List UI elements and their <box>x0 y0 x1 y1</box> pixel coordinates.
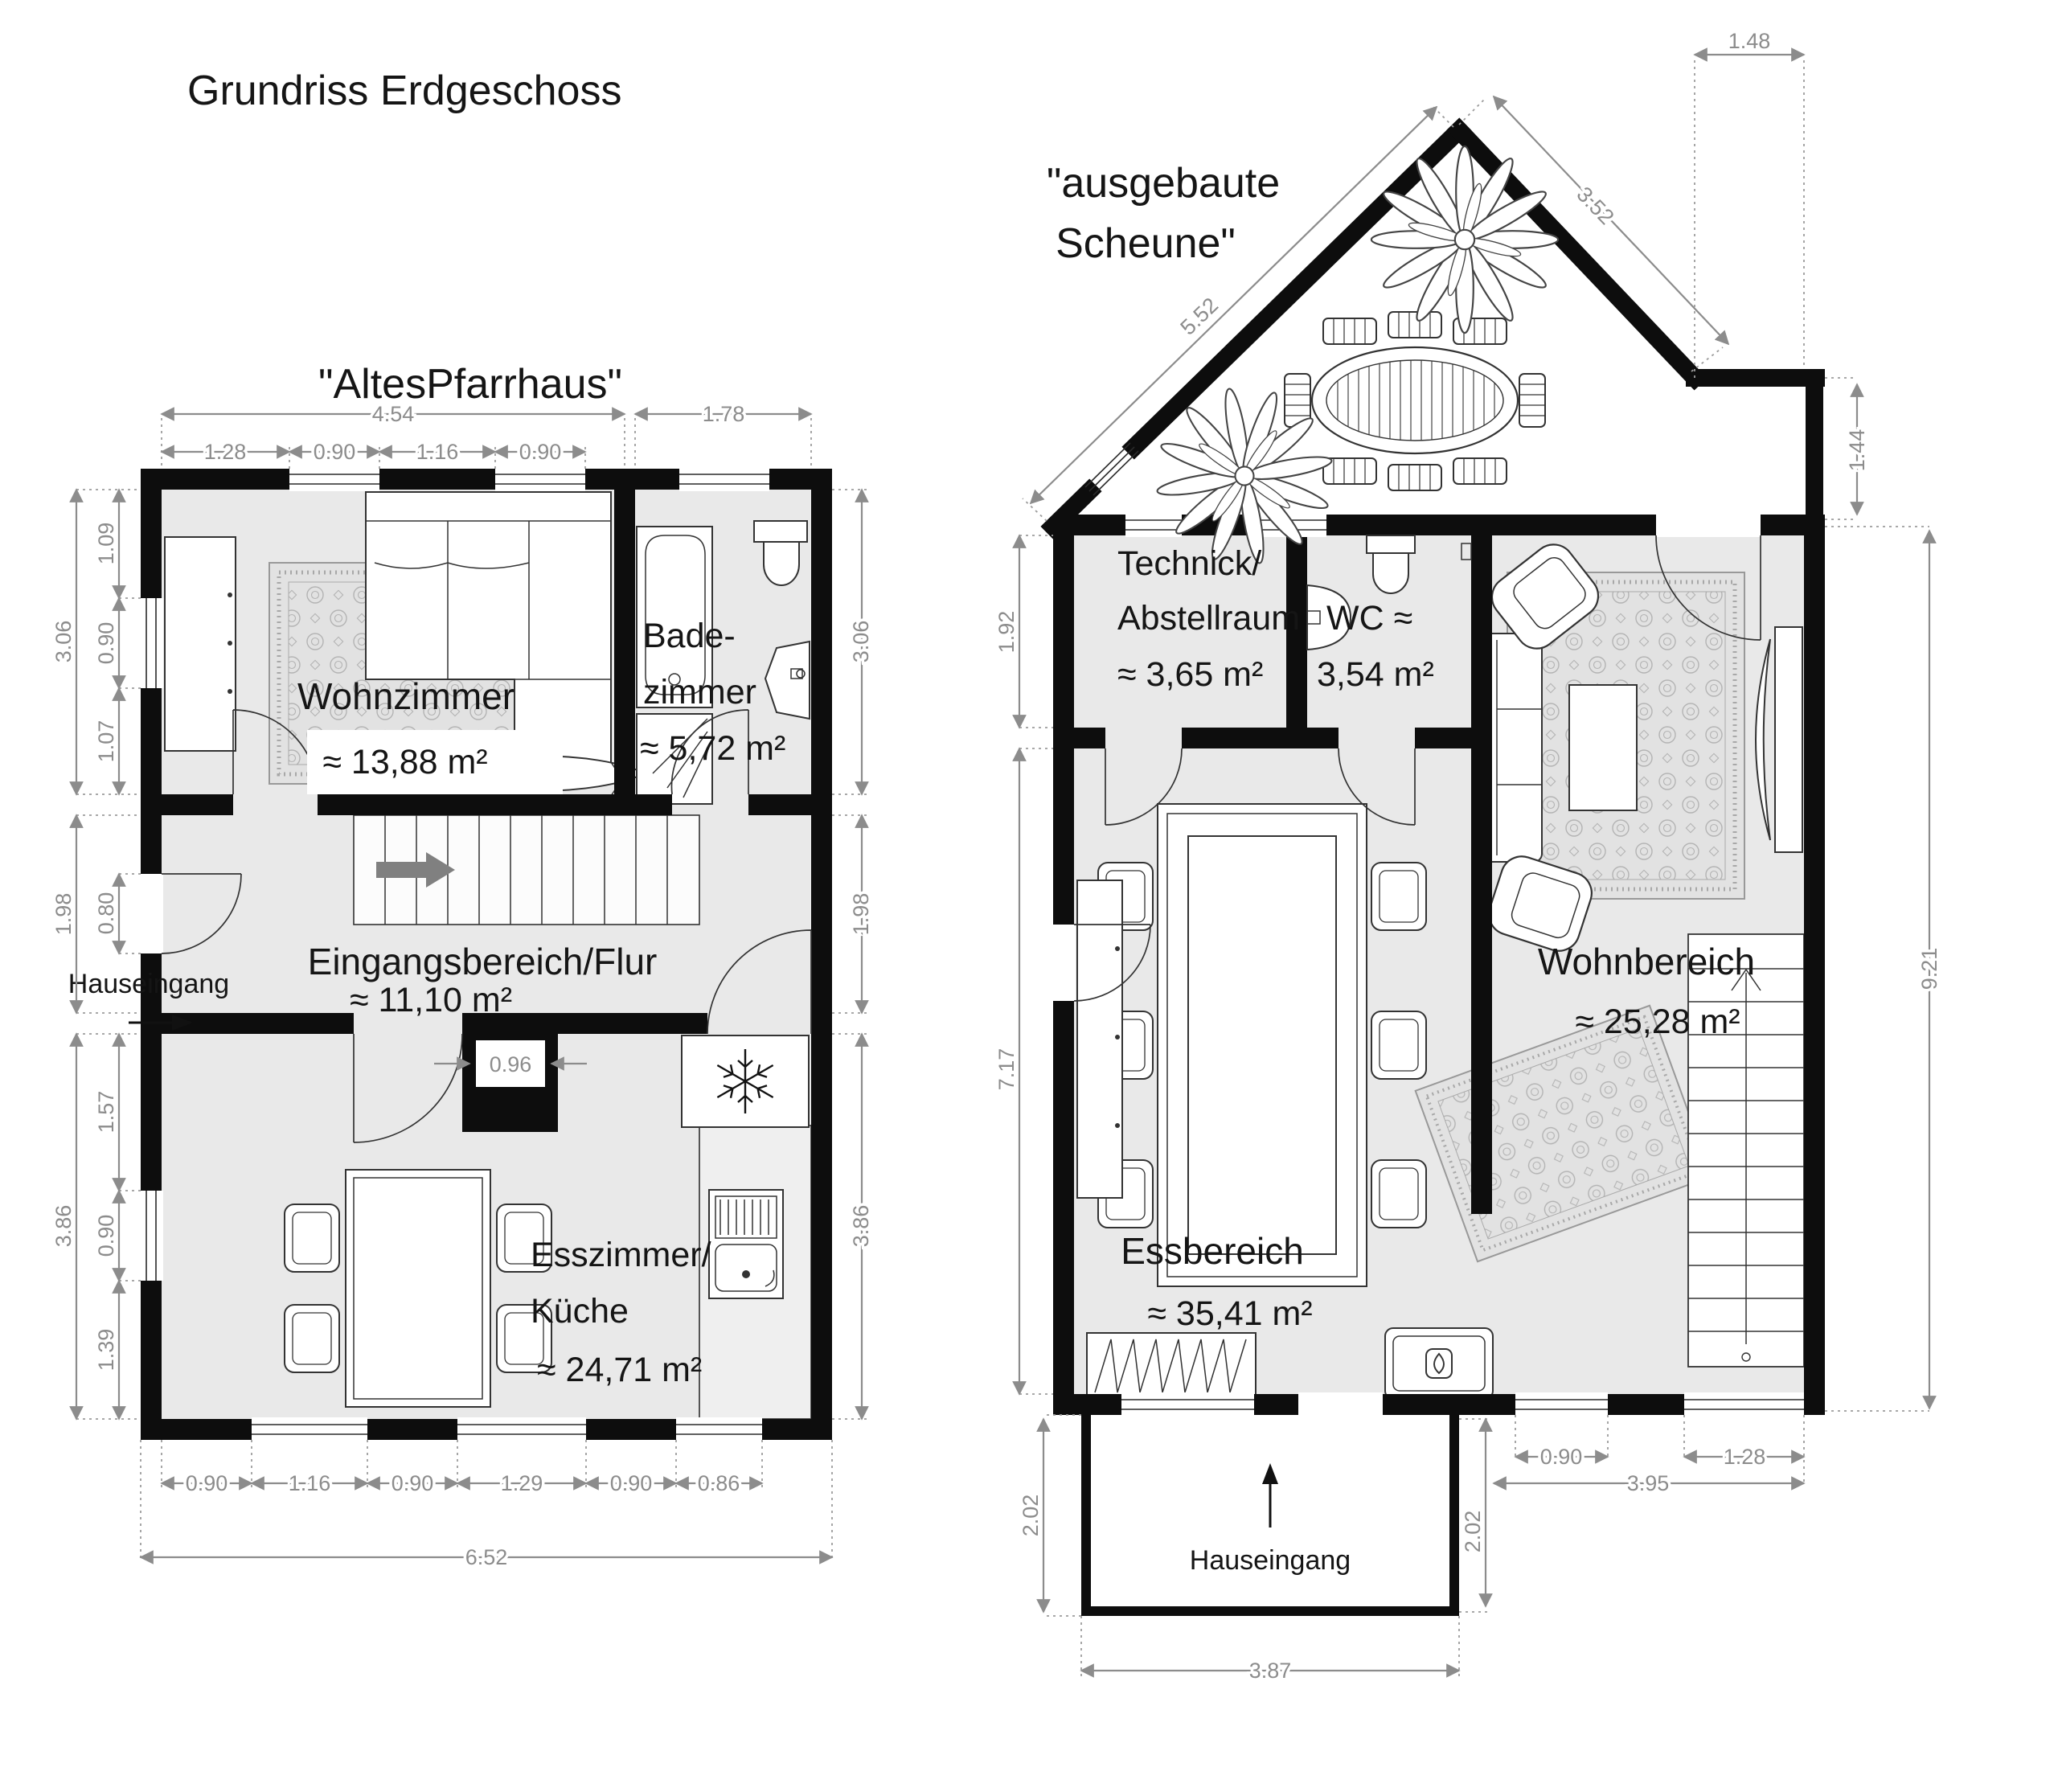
svg-text:0.80: 0.80 <box>94 892 118 935</box>
page-title: Grundriss Erdgeschoss <box>187 68 621 114</box>
essbereich-door-opening <box>1052 925 1076 1001</box>
wall-technik-wc <box>1286 535 1307 748</box>
svg-text:zimmer: zimmer <box>643 673 756 711</box>
svg-text:1.16: 1.16 <box>416 440 459 464</box>
svg-text:0.90: 0.90 <box>1540 1445 1583 1469</box>
wall-flur-ess <box>558 1013 707 1034</box>
svg-text:Essbereich: Essbereich <box>1121 1230 1304 1272</box>
dining-chair <box>285 1204 339 1272</box>
svg-text:1.39: 1.39 <box>94 1329 118 1372</box>
terrace-table <box>1312 347 1518 453</box>
sideboard <box>165 537 236 751</box>
radiator <box>1087 1333 1256 1397</box>
svg-text:≈ 35,41 m²: ≈ 35,41 m² <box>1147 1294 1312 1333</box>
svg-text:7.17: 7.17 <box>994 1048 1019 1091</box>
terrace-chair <box>1388 312 1441 338</box>
svg-text:1.09: 1.09 <box>94 523 118 565</box>
svg-text:3.06: 3.06 <box>51 621 76 663</box>
svg-text:1.78: 1.78 <box>703 402 745 426</box>
entrance-door-opening <box>139 874 163 953</box>
svg-text:WC ≈: WC ≈ <box>1326 599 1412 638</box>
svg-text:0.90: 0.90 <box>94 1215 118 1257</box>
svg-text:1.48: 1.48 <box>1728 29 1771 53</box>
terrace-chair <box>1388 465 1441 490</box>
svg-text:Eingangsbereich/Flur: Eingangsbereich/Flur <box>308 941 658 982</box>
wall-technik-ess <box>1182 728 1339 748</box>
svg-text:0.86: 0.86 <box>698 1471 740 1495</box>
terrace-chair <box>1323 318 1376 344</box>
svg-text:≈ 13,88 m²: ≈ 13,88 m² <box>322 743 487 781</box>
dining-chair <box>1371 1011 1426 1079</box>
svg-text:5.52: 5.52 <box>1175 293 1223 339</box>
left-plan-name: "AltesPfarrhaus" <box>318 361 622 408</box>
dining-table <box>346 1170 490 1407</box>
svg-text:Bade-: Bade- <box>643 617 736 655</box>
svg-text:2.02: 2.02 <box>1019 1495 1043 1537</box>
svg-text:6.52: 6.52 <box>465 1545 508 1569</box>
fireplace <box>1385 1328 1493 1399</box>
svg-text:1.92: 1.92 <box>994 611 1019 654</box>
svg-text:≈ 5,72 m²: ≈ 5,72 m² <box>640 729 785 768</box>
svg-text:3.87: 3.87 <box>1249 1659 1292 1683</box>
porch-door-opening <box>1298 1392 1383 1417</box>
right-plan-name-1: "ausgebaute <box>1047 160 1280 207</box>
wall-wohn-flur <box>318 794 672 815</box>
right-floor-plan: "ausgebaute Scheune" <box>994 29 1941 1683</box>
floorplan-drawing: Grundriss Erdgeschoss "AltesPfarrhaus" <box>0 0 2058 1792</box>
svg-text:Technick/: Technick/ <box>1117 544 1261 583</box>
wall-technik-ess <box>1074 728 1105 748</box>
svg-text:Esszimmer/: Esszimmer/ <box>531 1236 711 1274</box>
svg-text:3.86: 3.86 <box>849 1205 873 1248</box>
svg-text:9.21: 9.21 <box>1917 948 1941 990</box>
svg-text:1.16: 1.16 <box>289 1471 331 1495</box>
entrance-porch: Hauseingang <box>1081 1415 1459 1616</box>
svg-text:0.90: 0.90 <box>94 622 118 665</box>
right-right-wall <box>1804 515 1825 1415</box>
wall-bad-flur <box>748 794 811 815</box>
svg-text:1.44: 1.44 <box>1845 429 1869 472</box>
svg-text:0.90: 0.90 <box>610 1471 653 1495</box>
svg-text:0.90: 0.90 <box>392 1471 434 1495</box>
kitchen-sink <box>709 1190 783 1298</box>
terrace-chair <box>1519 374 1545 427</box>
svg-text:1.57: 1.57 <box>94 1091 118 1134</box>
svg-text:Hauseingang: Hauseingang <box>68 969 229 999</box>
svg-text:0.90: 0.90 <box>519 440 562 464</box>
coffee-table-right <box>1569 685 1637 810</box>
flame-icon <box>1426 1349 1452 1378</box>
floorplan-page: Grundriss Erdgeschoss "AltesPfarrhaus" <box>0 0 2058 1792</box>
dining-chair <box>1371 1160 1426 1228</box>
svg-text:≈ 3,65 m²: ≈ 3,65 m² <box>1117 655 1263 694</box>
svg-text:3.95: 3.95 <box>1627 1471 1670 1495</box>
sideboard-right <box>1077 880 1122 1198</box>
svg-text:0.96: 0.96 <box>490 1052 532 1076</box>
right-plan-name-2: Scheune" <box>1056 220 1236 267</box>
wall-wohn-bad-divider <box>614 469 635 815</box>
terrace-chair <box>1453 458 1507 484</box>
long-dining-table <box>1158 804 1367 1286</box>
dining-chair <box>285 1305 339 1372</box>
svg-text:3,54 m²: 3,54 m² <box>1317 655 1434 694</box>
svg-text:1.07: 1.07 <box>94 720 118 763</box>
wall-wc-wohnbereich <box>1471 535 1492 1214</box>
svg-text:1.29: 1.29 <box>501 1471 543 1495</box>
svg-text:≈ 11,10 m²: ≈ 11,10 m² <box>350 981 512 1019</box>
svg-text:Wohnzimmer: Wohnzimmer <box>297 675 514 717</box>
wall-wohn-flur <box>162 794 233 815</box>
wall-wc-ess <box>1415 728 1492 748</box>
svg-text:4.54: 4.54 <box>372 402 415 426</box>
svg-text:3.06: 3.06 <box>849 621 873 663</box>
fridge <box>682 1035 809 1127</box>
svg-text:Abstellraum: Abstellraum <box>1117 599 1300 638</box>
left-floor-plan: "AltesPfarrhaus" <box>51 361 873 1569</box>
sofa-right <box>1484 634 1542 862</box>
porch-entrance-label: Hauseingang <box>1190 1545 1351 1576</box>
svg-text:3.86: 3.86 <box>51 1205 76 1248</box>
svg-text:1.28: 1.28 <box>1724 1445 1766 1469</box>
svg-text:2.02: 2.02 <box>1461 1511 1485 1553</box>
svg-text:Wohnbereich: Wohnbereich <box>1538 941 1755 982</box>
svg-text:1.98: 1.98 <box>849 893 873 936</box>
svg-text:1.98: 1.98 <box>51 893 76 936</box>
svg-text:0.90: 0.90 <box>314 440 356 464</box>
staircase-right <box>1688 934 1804 1367</box>
svg-text:1.28: 1.28 <box>204 440 247 464</box>
svg-text:0.90: 0.90 <box>186 1471 228 1495</box>
wohnbereich-door-opening <box>1656 513 1761 537</box>
svg-text:Küche: Küche <box>531 1292 629 1331</box>
svg-text:≈ 25,28 m²: ≈ 25,28 m² <box>1575 1003 1740 1041</box>
dining-chair <box>1371 863 1426 930</box>
staircase <box>354 815 699 925</box>
svg-text:≈ 24,71 m²: ≈ 24,71 m² <box>537 1351 702 1389</box>
